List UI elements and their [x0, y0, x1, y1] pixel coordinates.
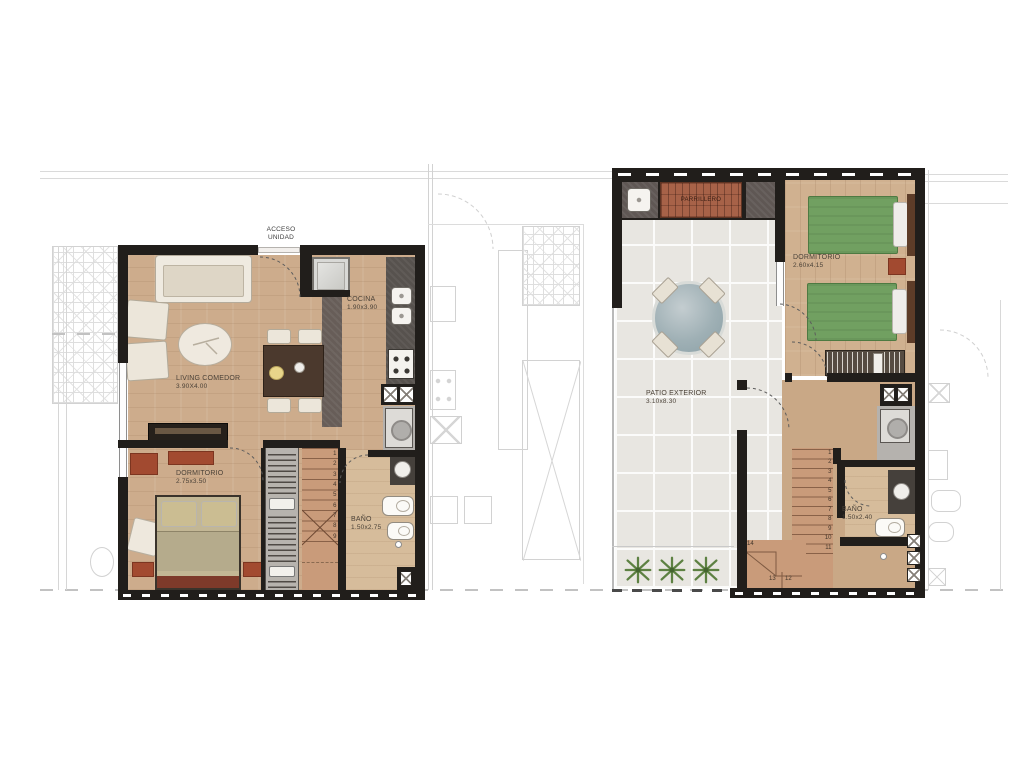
shaft-box [907, 534, 921, 548]
room-label-bano: BAÑO 1.50x2.40 [842, 506, 872, 522]
bidet [387, 522, 414, 540]
shaft-box [907, 551, 921, 565]
faint-shaft [430, 416, 462, 444]
wall [118, 477, 128, 600]
room-label-bano: BAÑO 1.50x2.75 [351, 516, 381, 532]
blanket [157, 531, 239, 571]
pillow [892, 289, 907, 334]
faint-bidet [928, 522, 954, 542]
patio-edge-line [612, 308, 614, 590]
faint-neighbour-unit-middle [428, 164, 612, 590]
wall [118, 440, 228, 448]
window-wall [118, 590, 425, 600]
wall [775, 180, 785, 262]
toilet [382, 496, 414, 516]
room-dims: 3.10x8.30 [646, 398, 707, 406]
stair-number: 6 [333, 503, 336, 510]
faint-shaft [928, 383, 950, 403]
faint-hatch-block [522, 226, 580, 306]
stair-dash [302, 562, 338, 563]
closet-rail [268, 514, 296, 562]
palm-tree [621, 553, 655, 587]
wall [263, 440, 340, 448]
wall [118, 245, 128, 363]
faint-sink [928, 450, 948, 480]
entry-label: ACCESO UNIDAD [249, 226, 313, 242]
faint-line [428, 224, 584, 225]
single-bed [808, 196, 898, 254]
stair-number: 11 [825, 545, 831, 552]
headboard [907, 281, 915, 343]
foot-mat [243, 562, 263, 577]
faint-shaft [928, 568, 946, 586]
pillow [201, 501, 237, 527]
room-dims: 3.90X4.00 [176, 383, 240, 391]
room-dims: 2.60x4.15 [793, 262, 840, 270]
dining-chair [298, 398, 322, 413]
sofa [155, 255, 252, 303]
coffee-table [178, 323, 232, 366]
palm-tree [655, 553, 689, 587]
shaft-box [399, 386, 414, 403]
stair-number: 8 [828, 516, 831, 523]
faint-dash-row [52, 333, 118, 335]
washing-machine [385, 408, 413, 448]
stair-number: 7 [828, 507, 831, 514]
room-name: DORMITORIO [176, 470, 223, 478]
pillow [161, 501, 197, 527]
stair-number: 10 [825, 535, 832, 542]
shaft-box [400, 571, 412, 586]
room-dims: 1.50x2.40 [842, 514, 872, 522]
wall [415, 245, 425, 600]
kitchen-island [322, 297, 342, 427]
room-name: BAÑO [842, 506, 872, 514]
stair-number: 1 [333, 451, 336, 458]
closet-rail [268, 580, 296, 588]
faint-wall-lines [58, 246, 67, 590]
room-name: DORMITORIO [793, 254, 840, 262]
stair-number: 5 [333, 492, 336, 499]
washing-machine [880, 409, 910, 443]
parrillero-grill: PARRILLERO [660, 182, 742, 218]
stair-number: 6 [828, 497, 831, 504]
faint-toilet [931, 490, 961, 512]
room-label-living: LIVING COMEDOR 3.90X4.00 [176, 375, 240, 391]
shaft-box [897, 387, 909, 402]
table-decor [294, 362, 305, 373]
foot-mat [132, 562, 154, 577]
stair-number: 5 [828, 488, 831, 495]
stair-number: 14 [747, 541, 754, 548]
wardrobe-rail [827, 352, 872, 374]
wall [261, 448, 265, 590]
armchair [125, 341, 170, 382]
door-stop-dot [880, 553, 887, 560]
stair-number: 2 [828, 459, 831, 466]
stair-number: 9 [333, 534, 336, 541]
kitchen-sink [391, 287, 412, 305]
table-decor [269, 366, 284, 380]
sink-bowl [893, 483, 910, 500]
wall [827, 373, 915, 382]
faint-fixture [464, 496, 492, 524]
wall [300, 290, 350, 297]
bed-runner [157, 576, 239, 588]
stair-number: 3 [333, 472, 336, 479]
faint-neighbour-unit-right [928, 170, 1008, 590]
stair-number: 9 [828, 526, 831, 533]
faint-sink [430, 286, 456, 322]
planter-line [612, 546, 734, 547]
pillow [893, 202, 908, 247]
stair-number: 13 [769, 576, 776, 583]
staircase: 123456789 [302, 448, 338, 590]
stair-number: 8 [333, 523, 336, 530]
window-wall [730, 588, 925, 598]
palm-tree [689, 553, 723, 587]
dining-chair [298, 329, 322, 344]
armchair [124, 299, 169, 341]
faint-stove [430, 370, 456, 410]
stove [388, 349, 414, 379]
storage-block [746, 182, 778, 218]
room-name: PATIO EXTERIOR [646, 390, 707, 398]
stair-number: 4 [333, 482, 336, 489]
wall [785, 373, 792, 382]
nightstand [130, 453, 158, 475]
wardrobe-rail [884, 352, 904, 374]
room-label-patio: PATIO EXTERIOR 3.10x8.30 [646, 390, 707, 406]
faint-fixture [430, 496, 458, 524]
kitchen-sink [391, 307, 412, 325]
dining-chair [267, 398, 291, 413]
wall [737, 430, 747, 588]
headboard [907, 194, 915, 256]
stair-landing: 14 13 12 [742, 540, 806, 588]
room-label-cocina: COCINA 1.90x3.90 [347, 296, 377, 312]
faint-fixture-outline [90, 547, 114, 577]
stair-number: 12 [785, 576, 792, 583]
wall [300, 245, 425, 255]
rug [168, 451, 214, 465]
open-wall [612, 168, 925, 180]
stair-number: 7 [333, 513, 336, 520]
shaft-box [883, 387, 895, 402]
stair-number: 1 [828, 450, 831, 457]
wall [837, 460, 915, 467]
wall [300, 245, 312, 295]
room-dims: 2.75x3.50 [176, 478, 223, 486]
floorplan-canvas: ACCESO UNIDAD [0, 0, 1024, 768]
room-label-dormitorio: DORMITORIO 2.60x4.15 [793, 254, 840, 270]
wall [833, 448, 841, 464]
closet [265, 448, 299, 590]
stair-number: 2 [333, 461, 336, 468]
wardrobe-door [873, 353, 883, 374]
faint-stair-block [522, 360, 580, 560]
wall [368, 450, 415, 457]
faint-line [583, 224, 584, 584]
patio-open-edge [612, 589, 730, 592]
double-bed [155, 495, 241, 590]
room-name: LIVING COMEDOR [176, 375, 240, 383]
wall [737, 380, 747, 390]
room-name: COCINA [347, 296, 377, 304]
sink-bowl [394, 461, 411, 478]
grill-sink [627, 188, 651, 212]
toilet [875, 518, 905, 537]
closet-shelf [269, 566, 295, 577]
room-label-dormitorio: DORMITORIO 2.75x3.50 [176, 470, 223, 486]
dining-chair [267, 329, 291, 344]
sofa-cushion [163, 265, 244, 297]
door-stop-dot [395, 541, 402, 548]
stair-number: 3 [828, 469, 831, 476]
entry-label-line1: ACCESO [249, 226, 313, 234]
window [119, 363, 127, 477]
closet-rail [268, 454, 296, 494]
wall [840, 537, 915, 546]
single-bed [807, 283, 897, 341]
wall [612, 180, 622, 308]
window [776, 262, 784, 306]
shaft-box [383, 386, 398, 403]
bath-vanity [390, 455, 415, 485]
nightstand [888, 258, 906, 275]
shaft-box [907, 568, 921, 582]
closet-shelf [269, 498, 295, 510]
left-floor-plan: ACCESO UNIDAD [118, 245, 425, 600]
entry-threshold [258, 247, 300, 253]
stair-number: 4 [828, 478, 831, 485]
faint-line [1000, 300, 1001, 590]
entry-label-line2: UNIDAD [249, 234, 313, 242]
room-name: BAÑO [351, 516, 381, 524]
wall [338, 448, 346, 590]
bath-vanity [888, 470, 915, 514]
room-dims: 1.90x3.90 [347, 304, 377, 312]
room-label-parrillero: PARRILLERO [681, 197, 722, 203]
room-dims: 1.50x2.75 [351, 524, 381, 532]
wall [118, 245, 258, 255]
right-floor-plan: PARRILLERO [612, 168, 925, 598]
